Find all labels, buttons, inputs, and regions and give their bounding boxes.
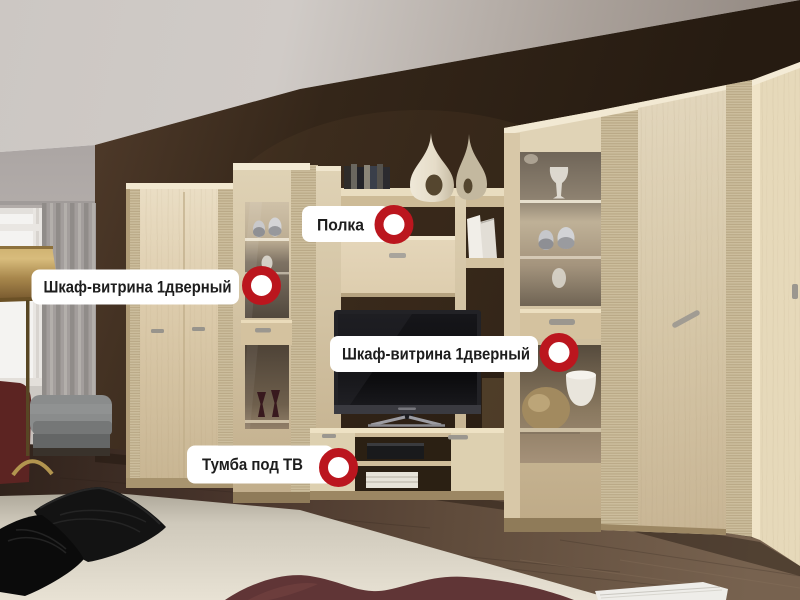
svg-text:Шкаф-витрина 1дверный: Шкаф-витрина 1дверный xyxy=(342,346,530,364)
svg-text:Полка: Полка xyxy=(317,217,365,235)
svg-text:Тумба под ТВ: Тумба под ТВ xyxy=(202,456,303,474)
svg-text:Шкаф-витрина 1дверный: Шкаф-витрина 1дверный xyxy=(44,279,232,297)
